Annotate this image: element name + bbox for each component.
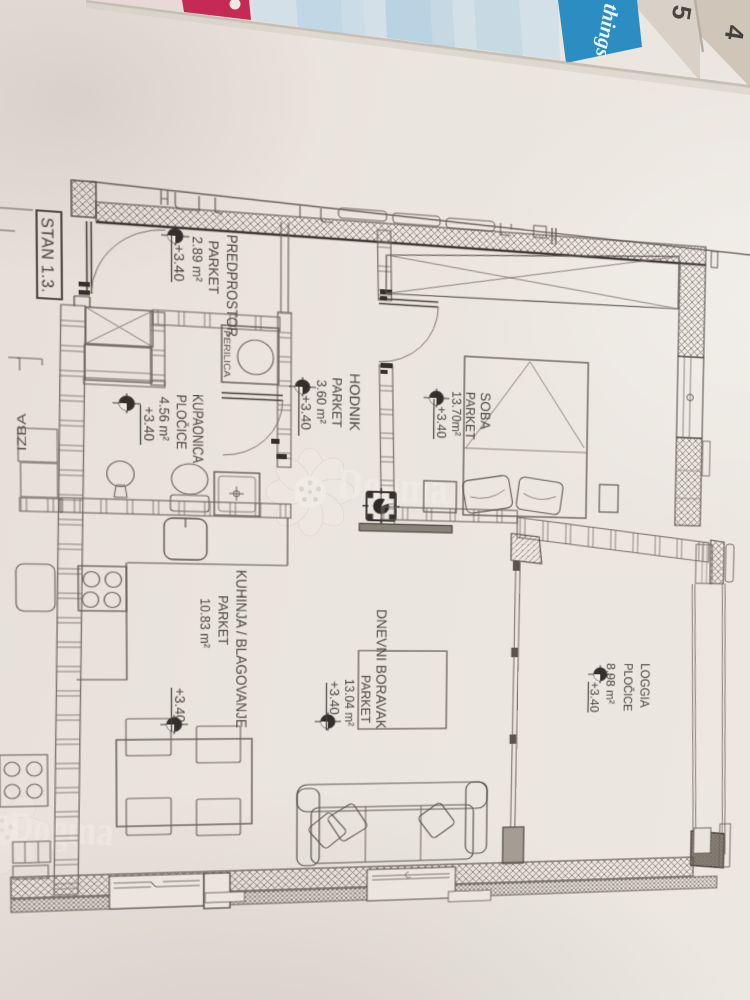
svg-text:PARKET: PARKET [205,240,220,294]
svg-text:+3.40: +3.40 [587,682,601,713]
svg-text:PLOČICE: PLOČICE [173,394,189,450]
svg-text:+3.40: +3.40 [326,681,341,715]
svg-text:PARKET: PARKET [329,377,344,427]
svg-text:PARKET: PARKET [215,595,230,645]
svg-text:SOBA: SOBA [477,392,492,430]
svg-text:KUPAONICA: KUPAONICA [189,394,205,464]
svg-text:4.56 m²: 4.56 m² [156,396,171,441]
svg-text:LOGGIA: LOGGIA [637,663,652,708]
svg-text:+3.40: +3.40 [170,244,185,282]
svg-text:PLOČICE: PLOČICE [620,663,635,711]
svg-text:2.89 m²: 2.89 m² [189,236,204,282]
svg-text:PERILICA: PERILICA [221,330,231,378]
svg-text:+3.40: +3.40 [434,406,448,439]
svg-text:10.83 m²: 10.83 m² [197,598,212,648]
svg-text:STAN 1.3.: STAN 1.3. [38,217,58,294]
svg-text:PARKET: PARKET [358,675,373,723]
svg-text:13.04 m²: 13.04 m² [341,679,356,727]
svg-text:IZBA: IZBA [15,412,29,451]
svg-text:DNEVNI BORAVAK: DNEVNI BORAVAK [373,609,389,729]
svg-text:+3.40: +3.40 [140,406,156,441]
svg-text:3.60 m²: 3.60 m² [313,379,328,424]
svg-text:HODNIK: HODNIK [346,373,362,432]
svg-text:KUHINJA / BLAGOVANJE: KUHINJA / BLAGOVANJE [233,570,249,728]
svg-text:PARKET: PARKET [462,391,476,439]
svg-text:+3.40: +3.40 [298,395,313,431]
svg-text:13.70m²: 13.70m² [448,391,462,437]
svg-text:PREDPROSTOR: PREDPROSTOR [223,234,239,337]
